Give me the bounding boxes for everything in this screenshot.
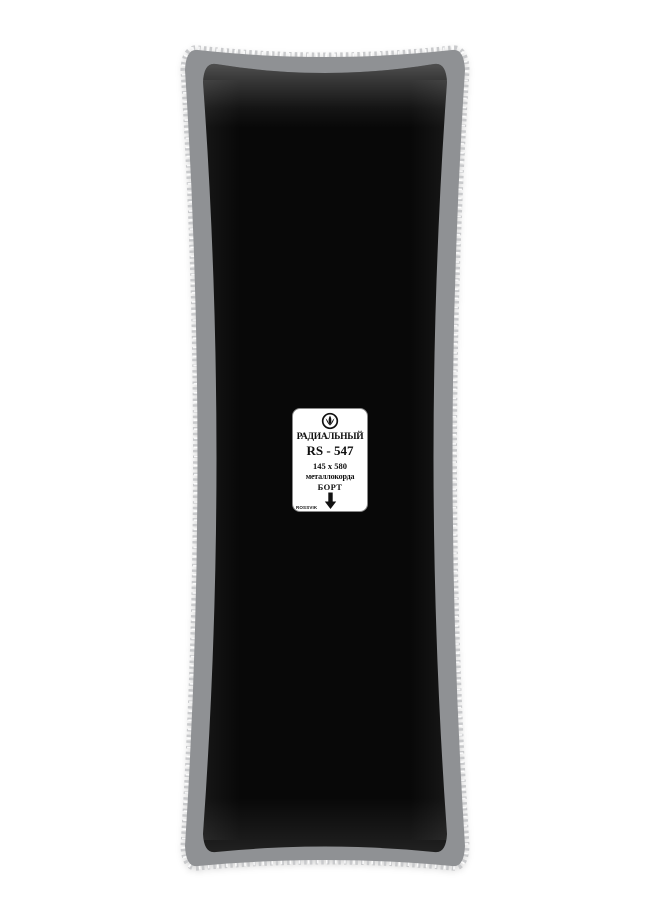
label-size-text: 145 x 580	[313, 462, 347, 471]
label-cord-text: металлокорда	[306, 473, 355, 481]
brand-name: ROSSVIK	[296, 505, 317, 510]
label-type-text: РАДИАЛЬНЫЙ	[297, 433, 364, 443]
product-photo: РАДИАЛЬНЫЙ RS - 547 145 x 580 металлокор…	[0, 0, 650, 919]
label-bead-text: БОРТ	[318, 483, 343, 492]
label-model-text: RS - 547	[307, 444, 354, 458]
rossvik-emblem-icon	[321, 412, 339, 430]
product-label: РАДИАЛЬНЫЙ RS - 547 145 x 580 металлокор…	[292, 408, 368, 512]
down-arrow-icon	[324, 492, 337, 509]
